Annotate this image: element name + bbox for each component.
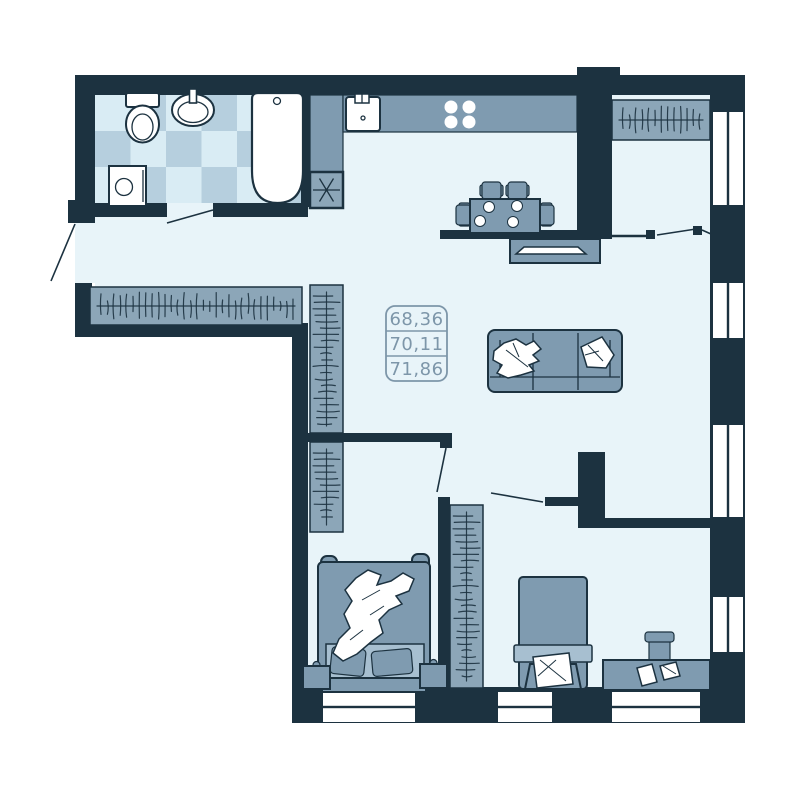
wall-lower-wing-west xyxy=(292,330,308,690)
nightstand xyxy=(303,662,330,690)
wall-bedrooms-divider xyxy=(438,497,450,687)
bed-single xyxy=(514,577,592,689)
hatch-stroke xyxy=(321,385,335,386)
tv-console xyxy=(510,239,600,263)
floor-tile xyxy=(95,131,131,167)
entry-door-leaf xyxy=(51,224,75,281)
window-bottom-2 xyxy=(498,692,552,722)
area-value-2: 70,11 xyxy=(389,334,443,355)
dining-chair xyxy=(456,203,471,226)
hatch-stroke xyxy=(235,301,236,319)
wall-top-step xyxy=(577,67,620,77)
window-right-4 xyxy=(713,597,743,652)
sofa xyxy=(488,330,622,392)
floor-tile xyxy=(166,167,202,203)
bed-footboard xyxy=(322,678,426,692)
tv-icon xyxy=(516,247,586,254)
floor-entry-opening xyxy=(75,223,95,283)
area-value-3: 71,86 xyxy=(389,359,443,380)
desk-top xyxy=(603,660,710,690)
floor-tile xyxy=(166,131,202,167)
hatch-stroke xyxy=(287,301,288,317)
window-right-3 xyxy=(713,425,743,517)
wall-bedroom1-door-post xyxy=(440,433,452,448)
washing-machine xyxy=(109,166,146,206)
floor-tile xyxy=(202,167,238,203)
window-right-2 xyxy=(713,283,743,338)
area-label-box: 68,36 70,11 71,86 xyxy=(386,306,447,381)
hatch-stroke xyxy=(462,657,476,658)
hatch-stroke xyxy=(461,560,478,561)
wall-nook-north xyxy=(605,518,712,528)
hatch-stroke xyxy=(159,293,160,320)
kitchen-sink xyxy=(346,94,380,131)
wardrobe-closet-entry xyxy=(612,100,710,140)
hatch-stroke xyxy=(461,605,475,606)
hatch-stroke xyxy=(622,108,623,129)
window-bottom-3 xyxy=(612,692,700,722)
jar-icon xyxy=(645,632,674,662)
hatch-stroke xyxy=(462,650,471,651)
wardrobe-corridor-upper xyxy=(310,285,343,433)
wall-bathroom-south-east xyxy=(213,203,308,217)
dining-chair xyxy=(506,182,529,199)
hatch-stroke xyxy=(321,497,338,498)
hatch-stroke xyxy=(321,340,338,341)
floor-plan-drawing: 68,36 70,11 71,86 xyxy=(0,0,800,800)
window-bottom-1 xyxy=(323,692,415,722)
hatch-stroke xyxy=(100,294,101,315)
wardrobe-hallway xyxy=(90,287,302,325)
floor-tile xyxy=(202,131,238,167)
kitchen-counter-column xyxy=(310,95,343,172)
toilet xyxy=(126,93,159,143)
window-right-1 xyxy=(713,112,743,205)
nightstand xyxy=(420,660,447,689)
wall-bedroom2-block xyxy=(578,452,605,528)
hatch-stroke xyxy=(681,107,682,134)
wall-kitchen-closet xyxy=(577,95,612,237)
wall-left-door-post xyxy=(68,200,95,223)
wardrobe-corridor-lower xyxy=(310,442,343,532)
bed-pillow xyxy=(533,653,573,688)
dining-chair xyxy=(480,182,503,199)
wall-bedroom1-north xyxy=(308,433,452,442)
bed-double xyxy=(303,554,447,692)
vent-shaft xyxy=(310,172,343,208)
wall-bedroom2-north xyxy=(545,497,578,506)
hatch-stroke xyxy=(196,294,197,319)
hatch-stroke xyxy=(248,293,249,313)
area-value-1: 68,36 xyxy=(389,309,443,330)
bathtub xyxy=(252,93,303,203)
wall-top xyxy=(75,75,712,95)
floor-plan-canvas: 68,36 70,11 71,86 xyxy=(0,0,800,800)
wardrobe-bedroom2 xyxy=(450,505,483,688)
dining-chair xyxy=(539,203,554,226)
